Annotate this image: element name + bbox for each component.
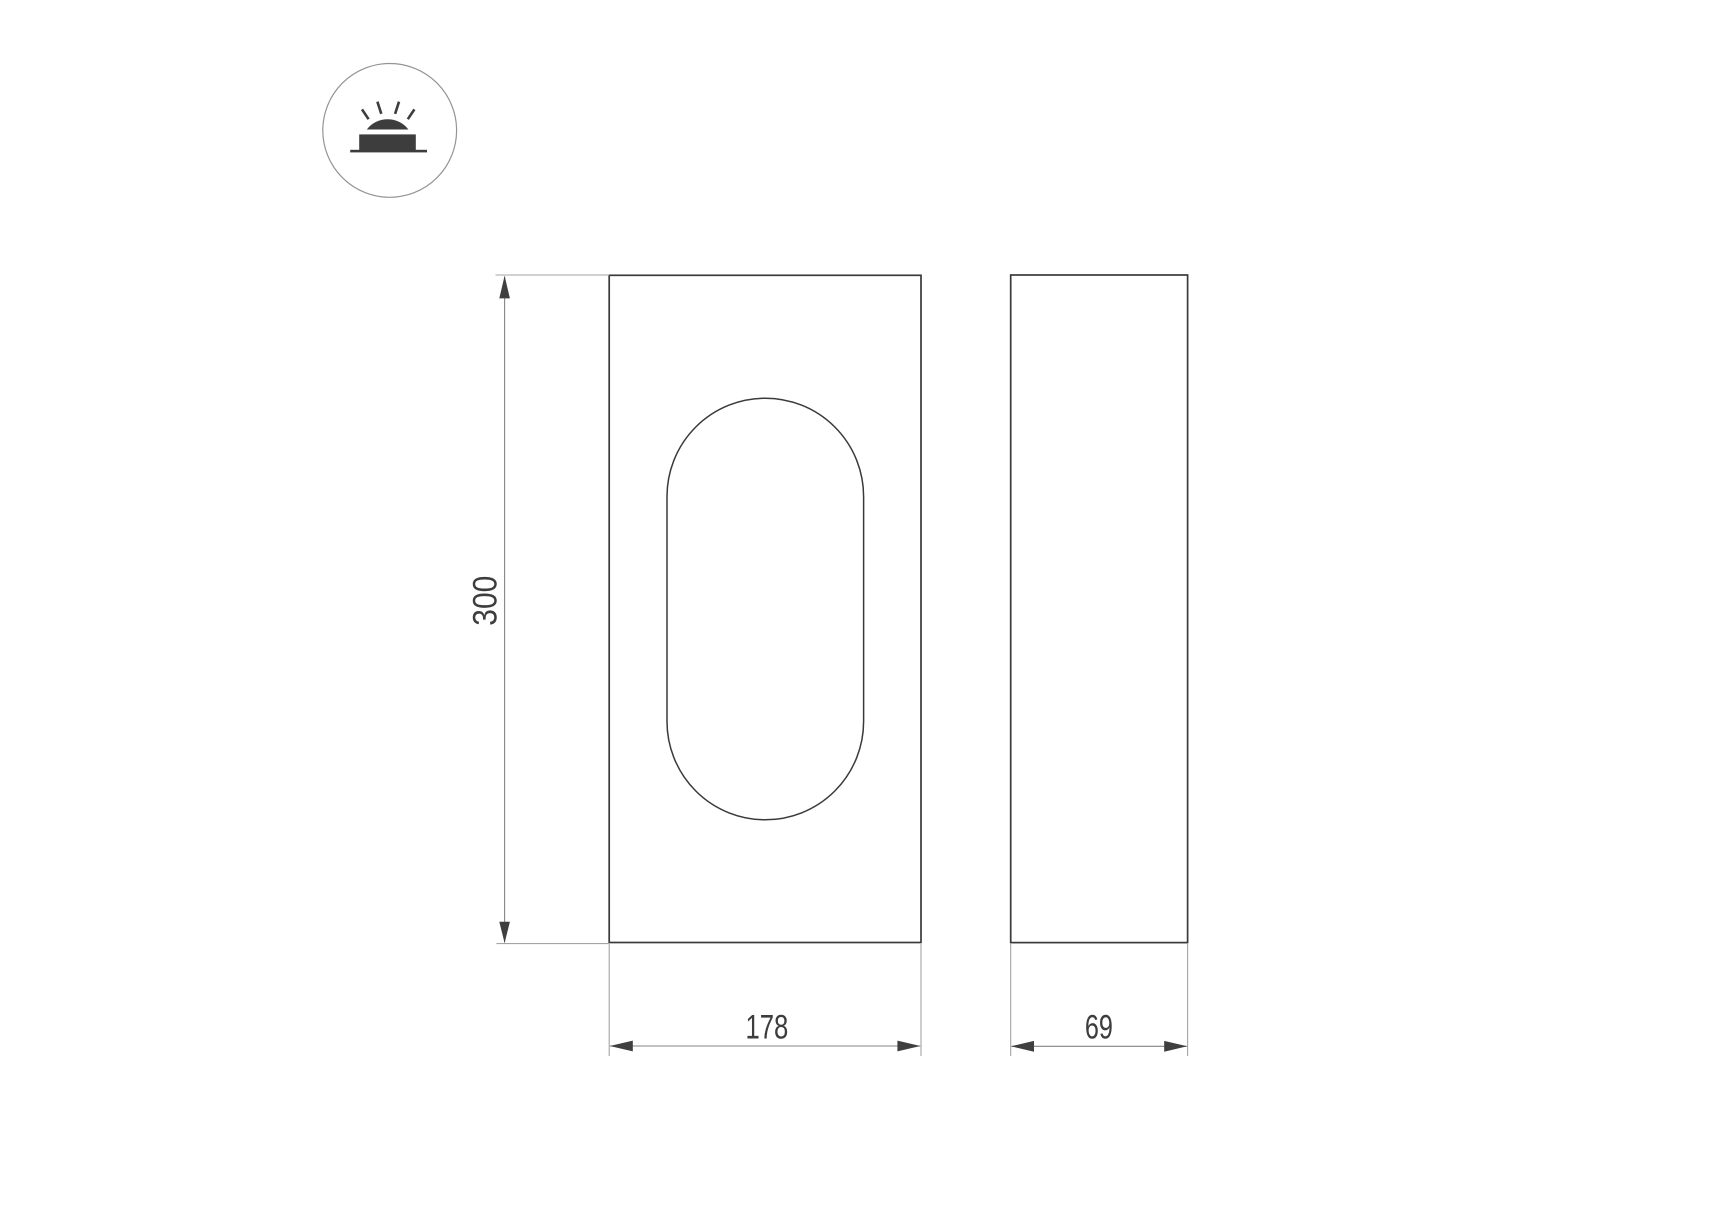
svg-text:300: 300 bbox=[466, 576, 504, 626]
svg-text:178: 178 bbox=[745, 1009, 788, 1046]
svg-text:69: 69 bbox=[1085, 1009, 1113, 1046]
